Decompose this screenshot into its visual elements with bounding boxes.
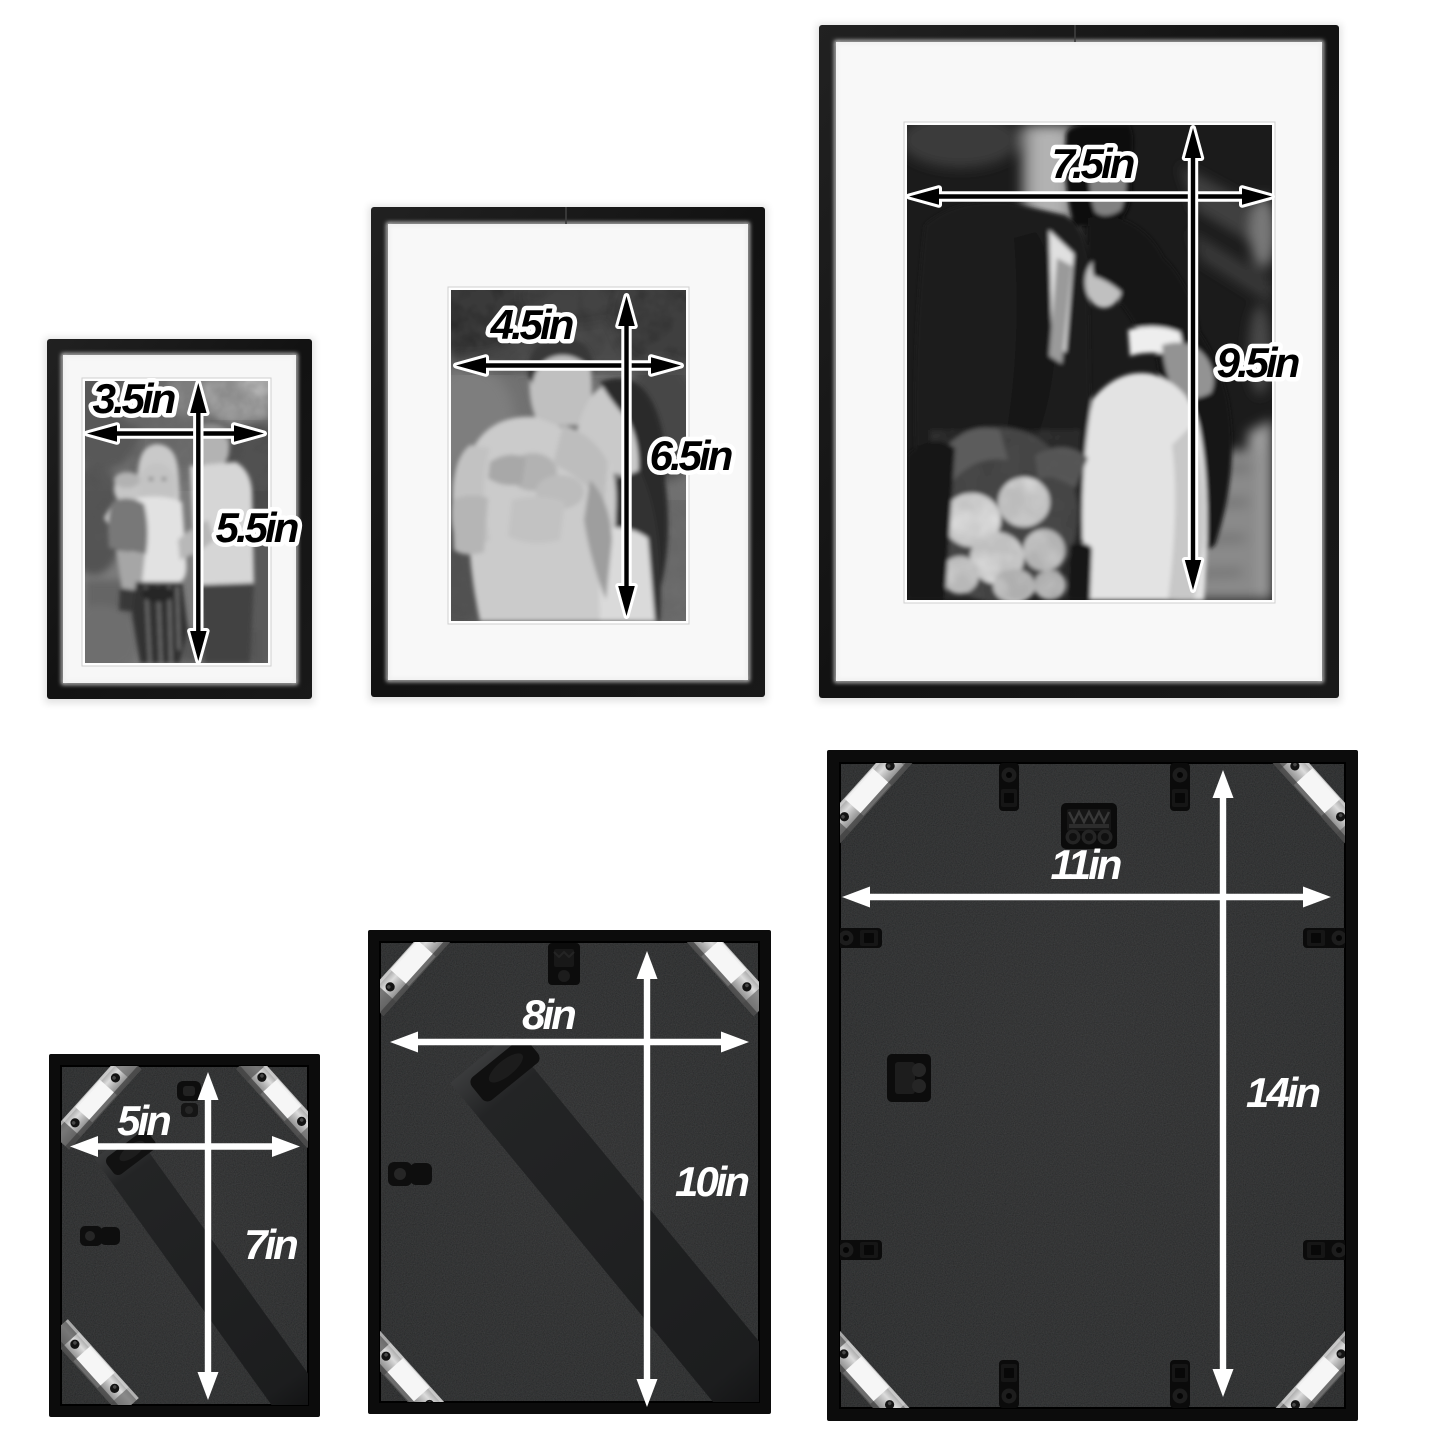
svg-text:11in: 11in [1051,841,1121,888]
svg-text:14in: 14in [1246,1069,1319,1116]
svg-text:3.5in: 3.5in [93,375,175,422]
svg-text:6.5in: 6.5in [650,432,732,479]
svg-text:5in: 5in [117,1097,170,1144]
svg-text:4.5in: 4.5in [490,301,573,348]
svg-text:7in: 7in [244,1221,297,1268]
svg-text:7.5in: 7.5in [1052,140,1134,187]
svg-text:10in: 10in [675,1158,748,1205]
svg-text:9.5in: 9.5in [1217,339,1299,386]
svg-text:8in: 8in [522,991,575,1038]
svg-text:5.5in: 5.5in [216,504,298,551]
